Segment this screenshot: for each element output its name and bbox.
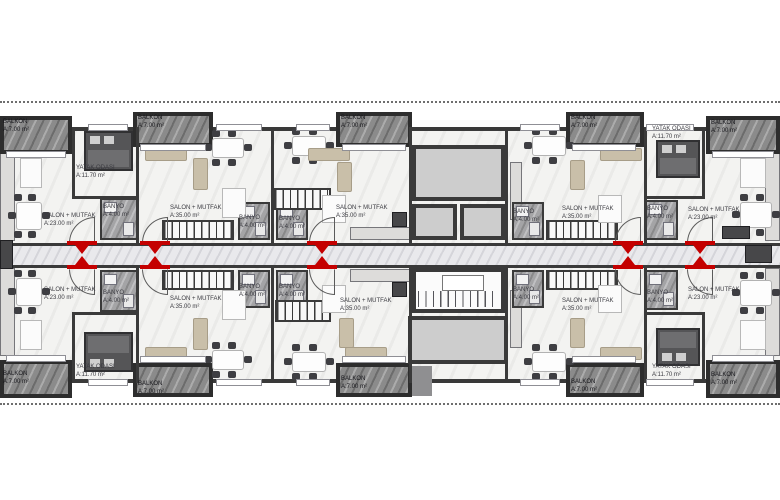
- balcony-label-area: A:7.00 m²: [3, 379, 29, 387]
- balcony-label-name: BALKON: [571, 115, 597, 123]
- living-kitchen-label-area: A:23.00 m²: [688, 215, 740, 223]
- balcony-label: BALKONA:7.00 m²: [341, 115, 367, 130]
- window: [216, 124, 262, 131]
- bathroom-label: BANYOA:4.00 m²: [513, 287, 539, 302]
- dining-table: [734, 274, 778, 312]
- chair: [212, 159, 220, 166]
- elevator-shaft: [412, 204, 457, 240]
- chair: [756, 307, 764, 314]
- coffee-table: [740, 158, 766, 188]
- floor-plan: BALKONA:7.00 m²BALKONA:7.00 m²BALKONA:7.…: [0, 0, 780, 500]
- bathroom-label: BANYOA:4.00 m²: [647, 290, 673, 305]
- bathroom-label-area: A:4.00 m²: [279, 292, 305, 300]
- living-kitchen-label: SALON + MUTFAKA:35.00 m²: [340, 298, 392, 313]
- bathroom-label-area: A:4.00 m²: [103, 212, 129, 220]
- sofa: [339, 318, 354, 348]
- interior-wall: [644, 267, 647, 383]
- bathroom-label: BANYOA:4.00 m²: [279, 216, 305, 231]
- bathroom-label-area: A:4.00 m²: [239, 223, 265, 231]
- kitchen-counter: [350, 269, 410, 282]
- bathroom-label: BANYOA:4.00 m²: [647, 206, 673, 221]
- entrance-door-marker: [613, 241, 643, 269]
- bathroom-label-name: BANYO: [647, 290, 673, 298]
- coffee-table: [222, 188, 246, 218]
- bathroom-label: BANYOA:4.00 m²: [279, 284, 305, 299]
- bathroom-label-name: BANYO: [513, 209, 539, 217]
- stair-landing: [442, 275, 484, 291]
- bathroom-label-name: BANYO: [647, 206, 673, 214]
- chair: [28, 270, 36, 277]
- bathroom-label: BANYOA:4.00 m²: [239, 215, 265, 230]
- duplex-stair: [546, 220, 618, 240]
- balcony-label: BALKONA:7.00 m²: [3, 119, 29, 134]
- entrance-door-marker: [140, 241, 170, 269]
- bed: [656, 140, 700, 178]
- living-kitchen-label: SALON + MUTFAKA:35.00 m²: [562, 206, 614, 221]
- balcony-label-name: BALKON: [571, 379, 597, 387]
- chair: [284, 142, 292, 149]
- core-stairwell: [412, 268, 505, 313]
- bathroom-label-area: A:4.00 m²: [103, 298, 129, 306]
- living-kitchen-label-area: A:35.00 m²: [170, 213, 222, 221]
- balcony-label: BALKONA:7.00 m²: [341, 376, 367, 391]
- bedroom-label: YATAK ODASIA:11.70 m²: [76, 364, 115, 379]
- sofa: [570, 160, 585, 190]
- sofa: [193, 318, 208, 350]
- bathroom-label: BANYOA:4.00 m²: [513, 209, 539, 224]
- living-kitchen-label: SALON + MUTFAKA:35.00 m²: [170, 205, 222, 220]
- elevator-shaft: [460, 204, 505, 240]
- window: [296, 379, 330, 386]
- dining-table: [206, 344, 250, 376]
- chair: [532, 344, 540, 351]
- chair: [756, 229, 764, 236]
- chair: [524, 358, 532, 365]
- kitchen-appliance: [392, 282, 407, 297]
- bathroom-label-name: BANYO: [279, 284, 305, 292]
- interior-wall: [644, 312, 705, 315]
- central-corridor: [0, 243, 780, 268]
- bathroom-label-area: A:4.00 m²: [647, 214, 673, 222]
- bedroom-label: YATAK ODASIA:11.70 m²: [652, 126, 691, 141]
- interior-wall: [136, 127, 139, 243]
- chair: [8, 288, 16, 295]
- balcony-label-name: BALKON: [138, 115, 164, 123]
- kitchen-appliance: [722, 226, 750, 239]
- bathroom-label-area: A:4.00 m²: [279, 224, 305, 232]
- bedroom-label-name: YATAK ODASI: [76, 364, 115, 372]
- window: [6, 355, 66, 362]
- chair: [212, 342, 220, 349]
- kitchen-appliance: [0, 240, 13, 269]
- bathroom-label-name: BANYO: [103, 290, 129, 298]
- living-kitchen-label-name: SALON + MUTFAK: [688, 207, 740, 215]
- balcony-label: BALKONA:7.00 m²: [138, 381, 164, 396]
- property-boundary-dotted-line: [0, 101, 780, 103]
- duplex-stair: [162, 220, 234, 240]
- window: [646, 379, 694, 386]
- chair: [772, 289, 780, 296]
- living-kitchen-label-name: SALON + MUTFAK: [170, 296, 222, 304]
- balcony-label-area: A:7.00 m²: [571, 123, 597, 131]
- bathroom-label-name: BANYO: [513, 287, 539, 295]
- chair: [14, 194, 22, 201]
- balcony-label-area: A:7.00 m²: [3, 127, 29, 135]
- chair: [14, 307, 22, 314]
- bathroom-label: BANYOA:4.00 m²: [239, 284, 265, 299]
- chair: [524, 142, 532, 149]
- kitchen-counter: [350, 227, 410, 240]
- chair: [309, 344, 317, 351]
- balcony-label-area: A:7.00 m²: [711, 380, 737, 388]
- chair: [772, 211, 780, 218]
- chair: [8, 212, 16, 219]
- living-kitchen-label-area: A:35.00 m²: [562, 214, 614, 222]
- interior-wall: [644, 196, 705, 199]
- balcony-label-area: A:7.00 m²: [138, 123, 164, 131]
- entrance-door-marker: [307, 241, 337, 269]
- core-pad: [412, 366, 432, 396]
- window: [216, 379, 262, 386]
- window: [712, 355, 774, 362]
- living-kitchen-label-name: SALON + MUTFAK: [44, 213, 96, 221]
- chair: [292, 157, 300, 164]
- living-kitchen-label: SALON + MUTFAKA:35.00 m²: [336, 205, 388, 220]
- bedroom-label: YATAK ODASIA:11.70 m²: [652, 364, 691, 379]
- dining-table: [526, 130, 572, 162]
- living-kitchen-label-name: SALON + MUTFAK: [562, 298, 614, 306]
- sofa: [570, 318, 585, 348]
- balcony-label: BALKONA:7.00 m²: [3, 371, 29, 386]
- interior-wall: [271, 267, 274, 383]
- bathroom-label-area: A:4.00 m²: [647, 298, 673, 306]
- bedroom-label-area: A:11.70 m²: [652, 134, 691, 142]
- living-kitchen-label: SALON + MUTFAKA:23.00 m²: [688, 207, 740, 222]
- living-kitchen-label: SALON + MUTFAKA:35.00 m²: [170, 296, 222, 311]
- interior-wall: [72, 127, 75, 199]
- balcony-label-area: A:7.00 m²: [138, 389, 164, 397]
- dining-table: [206, 132, 250, 164]
- core-top-room: [412, 145, 505, 201]
- coffee-table: [740, 320, 766, 350]
- chair: [28, 231, 36, 238]
- bathroom-label-name: BANYO: [279, 216, 305, 224]
- balcony-label-name: BALKON: [3, 371, 29, 379]
- chair: [756, 272, 764, 279]
- interior-wall: [702, 127, 705, 199]
- chair: [549, 344, 557, 351]
- chair: [284, 358, 292, 365]
- bedroom-label-name: YATAK ODASI: [652, 364, 691, 372]
- window: [342, 356, 406, 363]
- kitchen-appliance: [392, 212, 407, 227]
- bathroom-label-area: A:4.00 m²: [513, 295, 539, 303]
- interior-wall: [644, 127, 647, 243]
- interior-wall: [72, 312, 138, 315]
- living-kitchen-label-area: A:35.00 m²: [562, 306, 614, 314]
- bathroom-label-area: A:4.00 m²: [513, 217, 539, 225]
- interior-wall: [72, 196, 138, 199]
- balcony-label-name: BALKON: [3, 119, 29, 127]
- window: [140, 356, 206, 363]
- balcony-label-name: BALKON: [138, 381, 164, 389]
- chair: [549, 157, 557, 164]
- window: [88, 379, 128, 386]
- balcony-label-area: A:7.00 m²: [341, 384, 367, 392]
- dining-table: [286, 346, 332, 378]
- balcony-label-name: BALKON: [341, 376, 367, 384]
- interior-wall: [72, 312, 75, 383]
- property-boundary-dotted-line: [0, 403, 780, 405]
- living-kitchen-label: SALON + MUTFAKA:23.00 m²: [44, 213, 96, 228]
- duplex-stair: [162, 270, 234, 290]
- chair: [14, 270, 22, 277]
- balcony-label-area: A:7.00 m²: [711, 128, 737, 136]
- chair: [212, 130, 220, 137]
- bathroom-label-area: A:4.00 m²: [239, 292, 265, 300]
- chair: [212, 371, 220, 378]
- balcony-label-area: A:7.00 m²: [571, 387, 597, 395]
- stair-treads: [418, 291, 499, 307]
- chair: [532, 157, 540, 164]
- living-kitchen-label-name: SALON + MUTFAK: [688, 287, 740, 295]
- living-kitchen-label-name: SALON + MUTFAK: [562, 206, 614, 214]
- living-kitchen-label-name: SALON + MUTFAK: [44, 287, 96, 295]
- bathroom-label-name: BANYO: [103, 204, 129, 212]
- dining-table: [10, 196, 48, 236]
- bedroom-label-name: YATAK ODASI: [76, 165, 115, 173]
- bedroom-label: YATAK ODASIA:11.70 m²: [76, 165, 115, 180]
- chair: [326, 358, 334, 365]
- bathroom-label-name: BANYO: [239, 284, 265, 292]
- chair: [740, 194, 748, 201]
- chair: [28, 307, 36, 314]
- bathroom-label: BANYOA:4.00 m²: [103, 290, 129, 305]
- kitchen-appliance: [745, 245, 772, 263]
- chair: [740, 307, 748, 314]
- chair: [292, 344, 300, 351]
- chair: [756, 194, 764, 201]
- chair: [228, 342, 236, 349]
- balcony-label: BALKONA:7.00 m²: [571, 379, 597, 394]
- living-kitchen-label-area: A:23.00 m²: [44, 295, 96, 303]
- coffee-table: [20, 320, 42, 350]
- window: [88, 124, 128, 131]
- bed: [656, 328, 700, 366]
- living-kitchen-label-name: SALON + MUTFAK: [170, 205, 222, 213]
- balcony-label: BALKONA:7.00 m²: [571, 115, 597, 130]
- living-kitchen-label-area: A:23.00 m²: [688, 295, 740, 303]
- living-kitchen-label-area: A:35.00 m²: [340, 306, 392, 314]
- window: [520, 379, 560, 386]
- living-kitchen-label: SALON + MUTFAKA:35.00 m²: [562, 298, 614, 313]
- bedroom-label-area: A:11.70 m²: [76, 372, 115, 380]
- bathroom-label-name: BANYO: [239, 215, 265, 223]
- window: [296, 124, 330, 131]
- sofa: [337, 162, 352, 192]
- interior-wall: [136, 267, 139, 383]
- entrance-door-marker: [685, 241, 715, 269]
- living-kitchen-label: SALON + MUTFAKA:23.00 m²: [44, 287, 96, 302]
- balcony-label: BALKONA:7.00 m²: [711, 120, 737, 135]
- living-kitchen-label-name: SALON + MUTFAK: [336, 205, 388, 213]
- chair: [228, 371, 236, 378]
- balcony-label-area: A:7.00 m²: [341, 123, 367, 131]
- chair: [244, 356, 252, 363]
- chair: [28, 194, 36, 201]
- dining-table: [10, 272, 48, 312]
- interior-wall: [505, 127, 508, 243]
- window: [6, 151, 66, 158]
- chair: [244, 144, 252, 151]
- bedroom-label-area: A:11.70 m²: [76, 173, 115, 181]
- entrance-door-marker: [67, 241, 97, 269]
- bedroom-label-name: YATAK ODASI: [652, 126, 691, 134]
- living-kitchen-label-area: A:35.00 m²: [170, 304, 222, 312]
- chair: [14, 231, 22, 238]
- living-kitchen-label: SALON + MUTFAKA:23.00 m²: [688, 287, 740, 302]
- window: [572, 356, 636, 363]
- bedroom-label-area: A:11.70 m²: [652, 372, 691, 380]
- balcony-label-name: BALKON: [711, 372, 737, 380]
- window: [572, 144, 636, 151]
- balcony-label-name: BALKON: [341, 115, 367, 123]
- coffee-table: [20, 158, 42, 188]
- window: [342, 144, 406, 151]
- dining-table: [526, 346, 572, 378]
- balcony-label: BALKONA:7.00 m²: [138, 115, 164, 130]
- interior-wall: [702, 312, 705, 383]
- window: [712, 151, 774, 158]
- chair: [228, 159, 236, 166]
- bathroom-label: BANYOA:4.00 m²: [103, 204, 129, 219]
- living-kitchen-label-name: SALON + MUTFAK: [340, 298, 392, 306]
- chair: [228, 130, 236, 137]
- window: [140, 144, 206, 151]
- balcony-label-name: BALKON: [711, 120, 737, 128]
- sofa: [193, 158, 208, 190]
- living-kitchen-label-area: A:35.00 m²: [336, 213, 388, 221]
- balcony-label: BALKONA:7.00 m²: [711, 372, 737, 387]
- living-kitchen-label-area: A:23.00 m²: [44, 221, 96, 229]
- core-bottom-room: [408, 316, 508, 364]
- chair: [740, 272, 748, 279]
- interior-wall: [271, 127, 274, 243]
- window: [520, 124, 560, 131]
